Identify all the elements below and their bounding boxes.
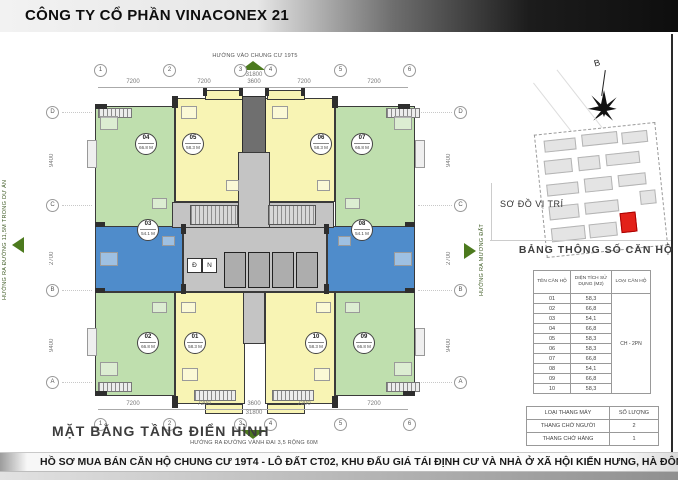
direction-label-right: HƯỚNG RA MƯƠNG ĐẤT bbox=[479, 210, 485, 310]
grid-bubble: A bbox=[46, 376, 59, 389]
direction-arrow-right-icon bbox=[464, 243, 476, 259]
site-building bbox=[584, 199, 619, 214]
furniture bbox=[152, 198, 167, 209]
spec-col-header: LOẠI CĂN HỘ bbox=[612, 271, 651, 294]
dimension-line bbox=[98, 87, 408, 88]
direction-label-left: HƯỚNG RA ĐƯỜNG 11,5M TRONG DỰ ÁN bbox=[2, 175, 8, 305]
dimension-label: 7200 bbox=[359, 79, 389, 85]
facade-bay bbox=[87, 328, 97, 356]
table-row: 0158,3 CH - 2PN bbox=[534, 294, 651, 304]
site-building bbox=[605, 151, 640, 166]
footer-banner: HỒ SƠ MUA BÁN CĂN HỘ CHUNG CƯ 19T4 - LÔ … bbox=[0, 452, 678, 472]
site-building bbox=[618, 172, 647, 187]
unit-06-bay bbox=[267, 90, 305, 100]
elevator bbox=[272, 252, 294, 288]
grid-bubble: C bbox=[454, 199, 467, 212]
core-shaft bbox=[242, 96, 266, 154]
grid-guide bbox=[418, 290, 452, 291]
lift-col-header: SỐ LƯỢNG bbox=[610, 407, 659, 420]
furniture bbox=[394, 362, 412, 376]
grid-guide bbox=[62, 205, 92, 206]
grid-bubble: 6 bbox=[403, 64, 416, 77]
dimension-label: 7200 bbox=[289, 79, 319, 85]
direction-label-bottom: HƯỚNG RA ĐƯỜNG VÀNH ĐAI 3,5 RỘNG 60M bbox=[174, 440, 334, 446]
grid-bubble: A bbox=[454, 376, 467, 389]
unit-badge-02: 0266.8 M bbox=[137, 332, 159, 354]
core-label-d: Đ bbox=[187, 258, 202, 273]
grid-guide bbox=[62, 112, 92, 113]
core-lobby-south bbox=[243, 292, 265, 344]
dimension-total: 31800 bbox=[239, 72, 269, 78]
direction-arrow-left-icon bbox=[12, 237, 24, 253]
furniture bbox=[314, 368, 330, 381]
furniture bbox=[394, 116, 412, 130]
furniture bbox=[181, 302, 196, 313]
north-label: B bbox=[593, 57, 601, 68]
page-right-border bbox=[671, 34, 673, 452]
furniture bbox=[226, 180, 239, 191]
elevator bbox=[248, 252, 270, 288]
apartment-spec-table: TÊN CĂN HỘ DIỆN TÍCH SỬ DỤNG (M2) LOẠI C… bbox=[533, 270, 651, 394]
dimension-total: 31800 bbox=[239, 410, 269, 416]
grid-bubble: C bbox=[46, 199, 59, 212]
facade-bay bbox=[415, 140, 425, 168]
divider bbox=[490, 240, 672, 241]
elevator bbox=[296, 252, 318, 288]
lift-col-header: LOẠI THANG MÁY bbox=[527, 407, 610, 420]
unit-type-cell: CH - 2PN bbox=[612, 294, 651, 394]
site-building bbox=[546, 181, 579, 196]
site-building bbox=[639, 189, 656, 205]
wall bbox=[239, 88, 243, 96]
facade-bay bbox=[415, 328, 425, 356]
company-title: CÔNG TY CỔ PHẦN VINACONEX 21 bbox=[0, 0, 678, 32]
grid-bubble: D bbox=[454, 106, 467, 119]
dimension-label: 9400 bbox=[49, 330, 55, 360]
dimension-label: 2700 bbox=[446, 243, 452, 273]
unit-badge-08: 0854.1 M bbox=[351, 219, 373, 241]
furniture bbox=[100, 116, 118, 130]
site-map-title: SƠ ĐỒ VỊ TRÍ bbox=[500, 199, 564, 209]
unit-badge-06: 0658.3 M bbox=[310, 133, 332, 155]
wall bbox=[95, 391, 107, 396]
wall bbox=[203, 88, 207, 96]
furniture bbox=[317, 180, 330, 191]
furniture bbox=[100, 362, 118, 376]
wall bbox=[95, 104, 107, 109]
dimension-label: 9400 bbox=[49, 145, 55, 175]
divider bbox=[491, 183, 492, 240]
direction-label-top: HƯỚNG VÀO CHUNG CƯ 19T5 bbox=[180, 53, 330, 59]
core-shaft-lower bbox=[238, 152, 270, 228]
wall bbox=[403, 391, 415, 396]
wall bbox=[301, 88, 305, 96]
site-building-highlight bbox=[620, 212, 638, 234]
dimension-label: 9400 bbox=[446, 330, 452, 360]
spec-col-header: TÊN CĂN HỘ bbox=[534, 271, 571, 294]
furniture bbox=[345, 198, 360, 209]
wall bbox=[172, 396, 178, 408]
site-building bbox=[621, 130, 648, 145]
furniture bbox=[100, 252, 118, 266]
document-page: CÔNG TY CỔ PHẦN VINACONEX 21 HƯỚNG VÀO C… bbox=[0, 0, 678, 480]
grid-bubble: 1 bbox=[94, 64, 107, 77]
grid-bubble: 6 bbox=[403, 418, 416, 431]
core-label-n: N bbox=[202, 258, 217, 273]
site-building bbox=[581, 131, 618, 147]
site-map bbox=[534, 122, 668, 258]
unit-badge-03: 0354.1 M bbox=[137, 219, 159, 241]
unit-badge-05: 0558.3 M bbox=[182, 133, 204, 155]
grid-guide bbox=[418, 112, 452, 113]
unit-badge-07: 0766.8 M bbox=[351, 133, 373, 155]
top-banner: CÔNG TY CỔ PHẦN VINACONEX 21 bbox=[0, 0, 678, 32]
dimension-label: 7200 bbox=[289, 401, 319, 407]
plan-title: MẶT BẰNG TẦNG ĐIỂN HÌNH bbox=[52, 423, 269, 439]
wall bbox=[332, 396, 338, 408]
bottom-strip bbox=[0, 472, 678, 480]
grid-guide bbox=[418, 205, 452, 206]
site-building bbox=[589, 222, 618, 239]
spec-table-title: BẢNG THÔNG SỐ CĂN HỘ bbox=[512, 244, 678, 256]
table-row: THANG CHỞ NGƯỜI2 bbox=[527, 420, 659, 433]
site-building bbox=[577, 155, 600, 171]
furniture bbox=[162, 236, 175, 246]
dimension-label: 3600 bbox=[239, 401, 269, 407]
dimension-label: 7200 bbox=[118, 401, 148, 407]
site-building bbox=[544, 158, 573, 175]
furniture bbox=[182, 368, 198, 381]
site-building bbox=[584, 176, 613, 193]
grid-bubble: 5 bbox=[334, 418, 347, 431]
unit-05-bay bbox=[205, 90, 243, 100]
wall bbox=[265, 88, 269, 96]
grid-guide bbox=[418, 382, 452, 383]
unit-badge-10: 1058.3 M bbox=[305, 332, 327, 354]
wall bbox=[95, 222, 105, 227]
unit-badge-04: 0466.8 M bbox=[135, 133, 157, 155]
wall bbox=[324, 284, 329, 294]
staircase bbox=[268, 205, 316, 225]
furniture bbox=[338, 236, 351, 246]
table-row: THANG CHỞ HÀNG1 bbox=[527, 433, 659, 446]
wall bbox=[398, 104, 410, 109]
wall bbox=[181, 284, 186, 294]
dimension-label: 3600 bbox=[239, 79, 269, 85]
site-building bbox=[544, 137, 577, 152]
furniture bbox=[316, 302, 331, 313]
grid-bubble: 2 bbox=[163, 64, 176, 77]
wall bbox=[172, 96, 178, 108]
grid-bubble: 5 bbox=[334, 64, 347, 77]
wall bbox=[324, 224, 329, 234]
balcony bbox=[272, 390, 314, 401]
unit-badge-09: 0966.8 M bbox=[353, 332, 375, 354]
dimension-label: 7200 bbox=[189, 79, 219, 85]
compass-star-icon bbox=[586, 90, 622, 126]
elevator-table: LOẠI THANG MÁY SỐ LƯỢNG THANG CHỞ NGƯỜI2… bbox=[526, 406, 659, 446]
grid-guide bbox=[62, 382, 92, 383]
dimension-label: 7200 bbox=[359, 401, 389, 407]
grid-bubble: B bbox=[46, 284, 59, 297]
furniture bbox=[152, 302, 167, 313]
wall bbox=[405, 288, 415, 293]
balcony bbox=[194, 390, 236, 401]
wall bbox=[181, 224, 186, 234]
grid-guide bbox=[62, 290, 92, 291]
grid-bubble: D bbox=[46, 106, 59, 119]
staircase bbox=[190, 205, 238, 225]
grid-bubble: B bbox=[454, 284, 467, 297]
wall bbox=[95, 288, 105, 293]
wall bbox=[332, 96, 338, 108]
furniture bbox=[394, 252, 412, 266]
dimension-label: 7200 bbox=[118, 79, 148, 85]
unit-badge-01: 0158.3 M bbox=[184, 332, 206, 354]
footer-text: HỒ SƠ MUA BÁN CĂN HỘ CHUNG CƯ 19T4 - LÔ … bbox=[0, 453, 678, 471]
dimension-label: 9400 bbox=[446, 145, 452, 175]
furniture bbox=[272, 106, 288, 119]
furniture bbox=[345, 302, 360, 313]
elevator bbox=[224, 252, 246, 288]
facade-bay bbox=[87, 140, 97, 168]
dimension-label: 2700 bbox=[49, 243, 55, 273]
spec-col-header: DIỆN TÍCH SỬ DỤNG (M2) bbox=[571, 271, 612, 294]
furniture bbox=[181, 106, 197, 119]
dimension-label: 7200 bbox=[189, 401, 219, 407]
wall bbox=[405, 222, 415, 227]
